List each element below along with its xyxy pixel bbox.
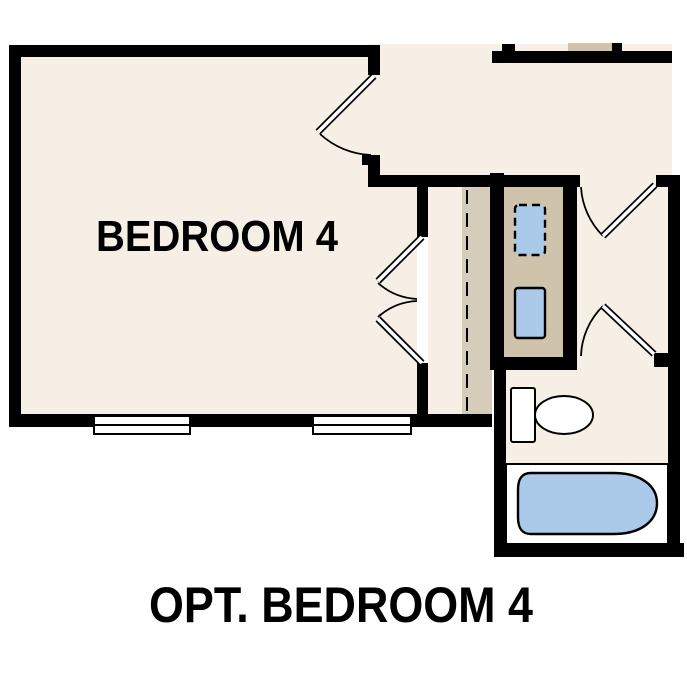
wall-laundry-bottom <box>490 357 577 370</box>
wall-bedroom-left <box>9 45 21 427</box>
dryer <box>515 288 545 338</box>
window-1 <box>94 416 190 434</box>
toilet-tank <box>511 388 535 442</box>
corridor-floor <box>577 175 668 357</box>
window-2 <box>313 416 411 434</box>
wall-hall-bottom <box>368 175 580 187</box>
wall-laundry-right <box>563 175 577 357</box>
wall-top-right <box>492 51 672 63</box>
wall-bedroom-top <box>9 45 378 57</box>
upper-opening-sliver <box>568 43 612 52</box>
wall-bathdoor-stub <box>654 353 668 367</box>
toilet-bowl <box>535 396 593 434</box>
wall-bathroom-bottom <box>494 543 684 557</box>
bedroom-label: BEDROOM 4 <box>96 212 338 261</box>
wall-stub-above-a <box>502 44 515 52</box>
wall-bathroom-left <box>494 357 506 557</box>
caption-label: OPT. BEDROOM 4 <box>149 577 533 633</box>
hall-strip-floor <box>428 187 462 414</box>
bathtub <box>518 473 657 534</box>
floor-plan: BEDROOM 4 OPT. BEDROOM 4 <box>0 0 687 687</box>
wall-door-jamb-top <box>368 45 380 75</box>
wall-stub-above-b <box>612 43 622 52</box>
hall-floor <box>368 44 672 175</box>
washer-optional <box>515 205 545 255</box>
wall-right <box>668 175 680 557</box>
wall-bedroom-right-lower <box>417 363 428 427</box>
wall-bedroom-right-upper <box>417 175 428 237</box>
wall-laundry-left <box>490 173 504 370</box>
